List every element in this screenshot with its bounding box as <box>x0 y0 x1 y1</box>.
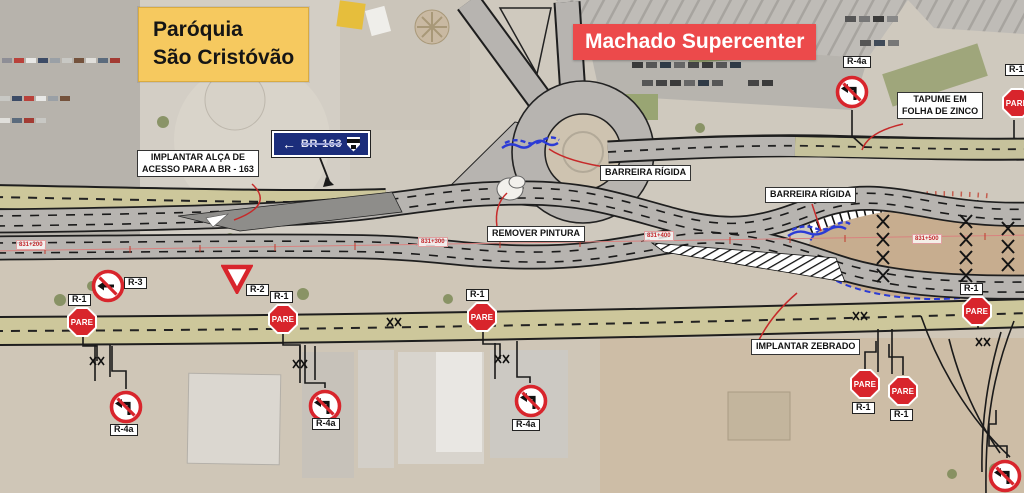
r1-label: R-1 <box>890 409 913 421</box>
paroquia-line1: Paróquia <box>153 16 294 44</box>
pare-text: PARE <box>966 306 988 315</box>
note-remover-pintura: REMOVER PINTURA <box>487 226 585 242</box>
route-number: BR-163 <box>301 138 342 150</box>
road-plan-map: Paróquia São Cristóvão Machado Supercent… <box>0 0 1024 493</box>
note-implantar-alca: IMPLANTAR ALÇA DE ACESSO PARA A BR - 163 <box>137 150 259 177</box>
paroquia-line2: São Cristóvão <box>153 44 294 72</box>
r4a-label: R-4a <box>110 424 138 436</box>
pare-text: PARE <box>854 379 876 388</box>
pare-text: PARE <box>272 314 294 323</box>
r4a-label: R-4a <box>312 418 340 430</box>
note-tapume: TAPUME EM FOLHA DE ZINCO <box>897 92 983 119</box>
br163-route-shield-icon <box>347 137 360 152</box>
pare-sign-icon: PARE <box>850 369 880 399</box>
note-implantar-alca-line1: IMPLANTAR ALÇA DE <box>142 152 254 164</box>
note-barreira-rigida-right: BARREIRA RÍGIDA <box>765 187 856 203</box>
pare-text: PARE <box>71 317 93 326</box>
r2-label: R-2 <box>246 284 269 296</box>
pare-sign-icon: PARE <box>67 307 97 337</box>
no-left-turn-sign-icon <box>109 390 143 424</box>
pare-text: PARE <box>892 386 914 395</box>
pare-sign-icon: PARE <box>467 302 497 332</box>
note-barreira-rigida-left: BARREIRA RÍGIDA <box>600 165 691 181</box>
access-road <box>608 146 1024 152</box>
r1-label: R-1 <box>466 289 489 301</box>
r1-label: R-1 <box>68 294 91 306</box>
no-left-turn-sign-icon <box>514 384 548 418</box>
paroquia-label: Paróquia São Cristóvão <box>138 7 309 82</box>
note-tapume-line2: FOLHA DE ZINCO <box>902 106 978 118</box>
note-implantar-alca-line2: ACESSO PARA A BR - 163 <box>142 164 254 176</box>
r1-label: R-1 <box>270 291 293 303</box>
br163-route-plate: ← BR-163 <box>272 131 370 157</box>
supercenter-label: Machado Supercenter <box>573 24 816 60</box>
no-left-turn-sign-icon <box>988 459 1022 493</box>
r1-label: R-1 <box>1005 64 1024 76</box>
pare-sign-icon: PARE <box>888 376 918 406</box>
note-tapume-line1: TAPUME EM <box>902 94 978 106</box>
pare-text: PARE <box>1006 98 1024 107</box>
pare-text: PARE <box>471 312 493 321</box>
r1-label: R-1 <box>960 283 983 295</box>
pare-sign-icon: PARE <box>962 296 992 326</box>
station-831-300: 831+300 <box>418 237 448 247</box>
station-831-500: 831+500 <box>912 234 942 244</box>
note-implantar-zebrado: IMPLANTAR ZEBRADO <box>751 339 860 355</box>
no-left-turn-sign-icon <box>835 75 869 109</box>
r4a-label: R-4a <box>843 56 871 68</box>
station-831-400: 831+400 <box>644 231 674 241</box>
prohibition-sign-icon <box>91 269 125 303</box>
pare-sign-icon: PARE <box>268 304 298 334</box>
r1-label: R-1 <box>852 402 875 414</box>
r3-label: R-3 <box>124 277 147 289</box>
left-arrow-icon: ← <box>282 137 296 151</box>
r4a-label: R-4a <box>512 419 540 431</box>
station-831-200: 831+200 <box>16 240 46 250</box>
